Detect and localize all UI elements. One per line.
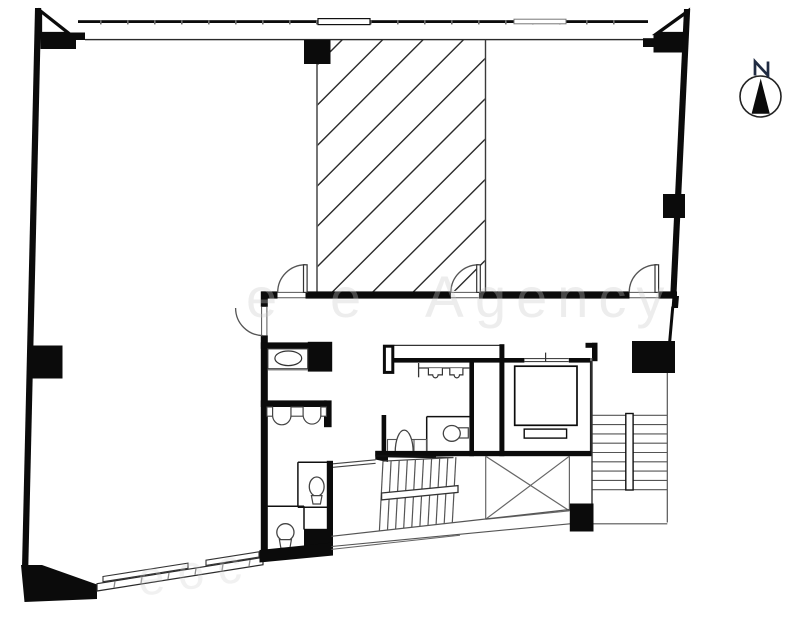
svg-text:gency: gency <box>475 266 674 329</box>
svg-text:e: e <box>246 266 277 329</box>
svg-text:A: A <box>425 265 464 330</box>
svg-text:e: e <box>330 266 361 329</box>
